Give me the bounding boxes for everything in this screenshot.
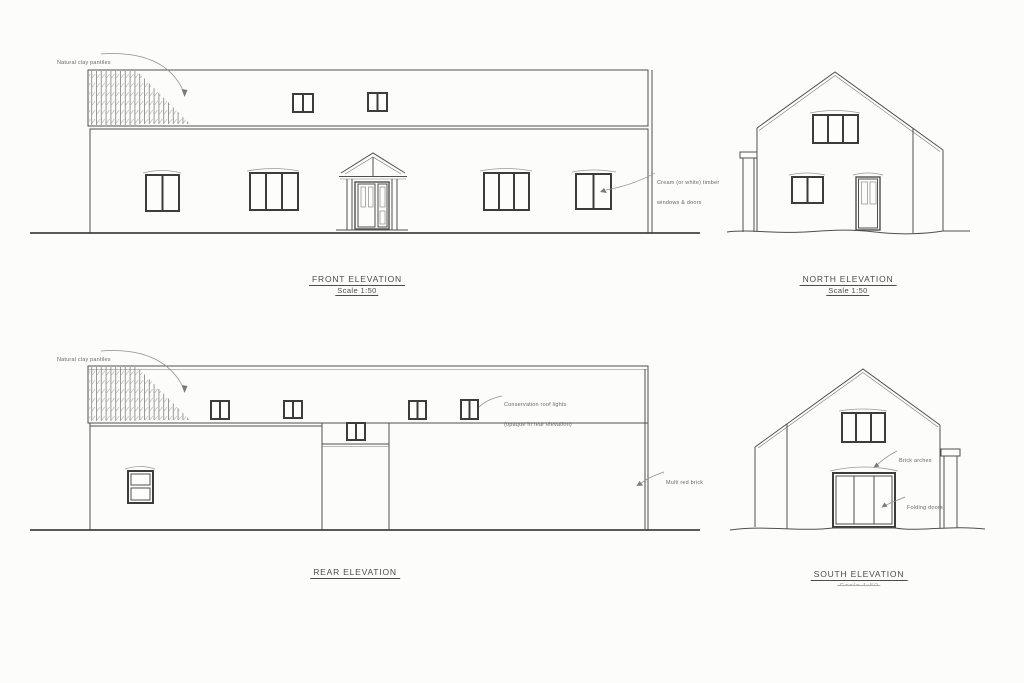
south-doors-annotation: Folding doors bbox=[907, 492, 943, 525]
elevation-drawing-sheet: Natural clay pantiles Cream (or white) t… bbox=[0, 0, 1024, 683]
rear-rooflights-annotation: Conservation roof lights (opaque in rear… bbox=[504, 389, 572, 441]
south-elevation-title: SOUTH ELEVATION bbox=[811, 569, 908, 581]
front-elevation-drawing bbox=[30, 54, 700, 233]
south-chimney bbox=[941, 449, 960, 528]
rear-centre-window bbox=[347, 423, 365, 440]
rear-elevation-title: REAR ELEVATION bbox=[310, 567, 400, 579]
front-porch bbox=[336, 153, 408, 230]
rear-rooflight-window bbox=[461, 400, 478, 419]
front-rooflight-window bbox=[293, 94, 313, 112]
rear-pantiles-annotation: Natural clay pantiles bbox=[57, 344, 111, 377]
front-elevation-scale: Scale 1:50 bbox=[335, 286, 378, 296]
north-lower-window bbox=[792, 177, 823, 203]
front-joinery-annotation: Cream (or white) timber windows & doors bbox=[657, 167, 719, 219]
front-elevation-title: FRONT ELEVATION bbox=[309, 274, 405, 286]
front-window bbox=[250, 173, 298, 210]
south-elevation-drawing bbox=[730, 369, 985, 530]
south-upper-window bbox=[842, 413, 885, 442]
south-elevation-scale: Scale 1:50 bbox=[837, 581, 880, 586]
north-elevation-scale: Scale 1:50 bbox=[826, 286, 869, 296]
north-chimney bbox=[740, 152, 757, 232]
rear-low-window bbox=[128, 471, 153, 503]
south-arches-annotation: Brick arches bbox=[899, 445, 932, 478]
north-elevation-drawing bbox=[727, 72, 970, 234]
north-door bbox=[856, 177, 880, 230]
rear-rooflight-window bbox=[211, 401, 229, 419]
front-window bbox=[146, 175, 179, 211]
rear-elevation-drawing bbox=[30, 351, 700, 530]
front-window bbox=[484, 173, 529, 210]
north-upper-window bbox=[813, 115, 858, 143]
front-entrance-door bbox=[355, 182, 389, 229]
rear-rooflight-window bbox=[284, 401, 302, 418]
front-pantiles-annotation: Natural clay pantiles bbox=[57, 47, 111, 80]
south-folding-doors bbox=[833, 473, 895, 527]
rear-brick-annotation: Multi red brick bbox=[666, 467, 703, 500]
front-rooflight-window bbox=[368, 93, 387, 111]
north-elevation-title: NORTH ELEVATION bbox=[800, 274, 897, 286]
rear-rooflight-window bbox=[409, 401, 426, 419]
